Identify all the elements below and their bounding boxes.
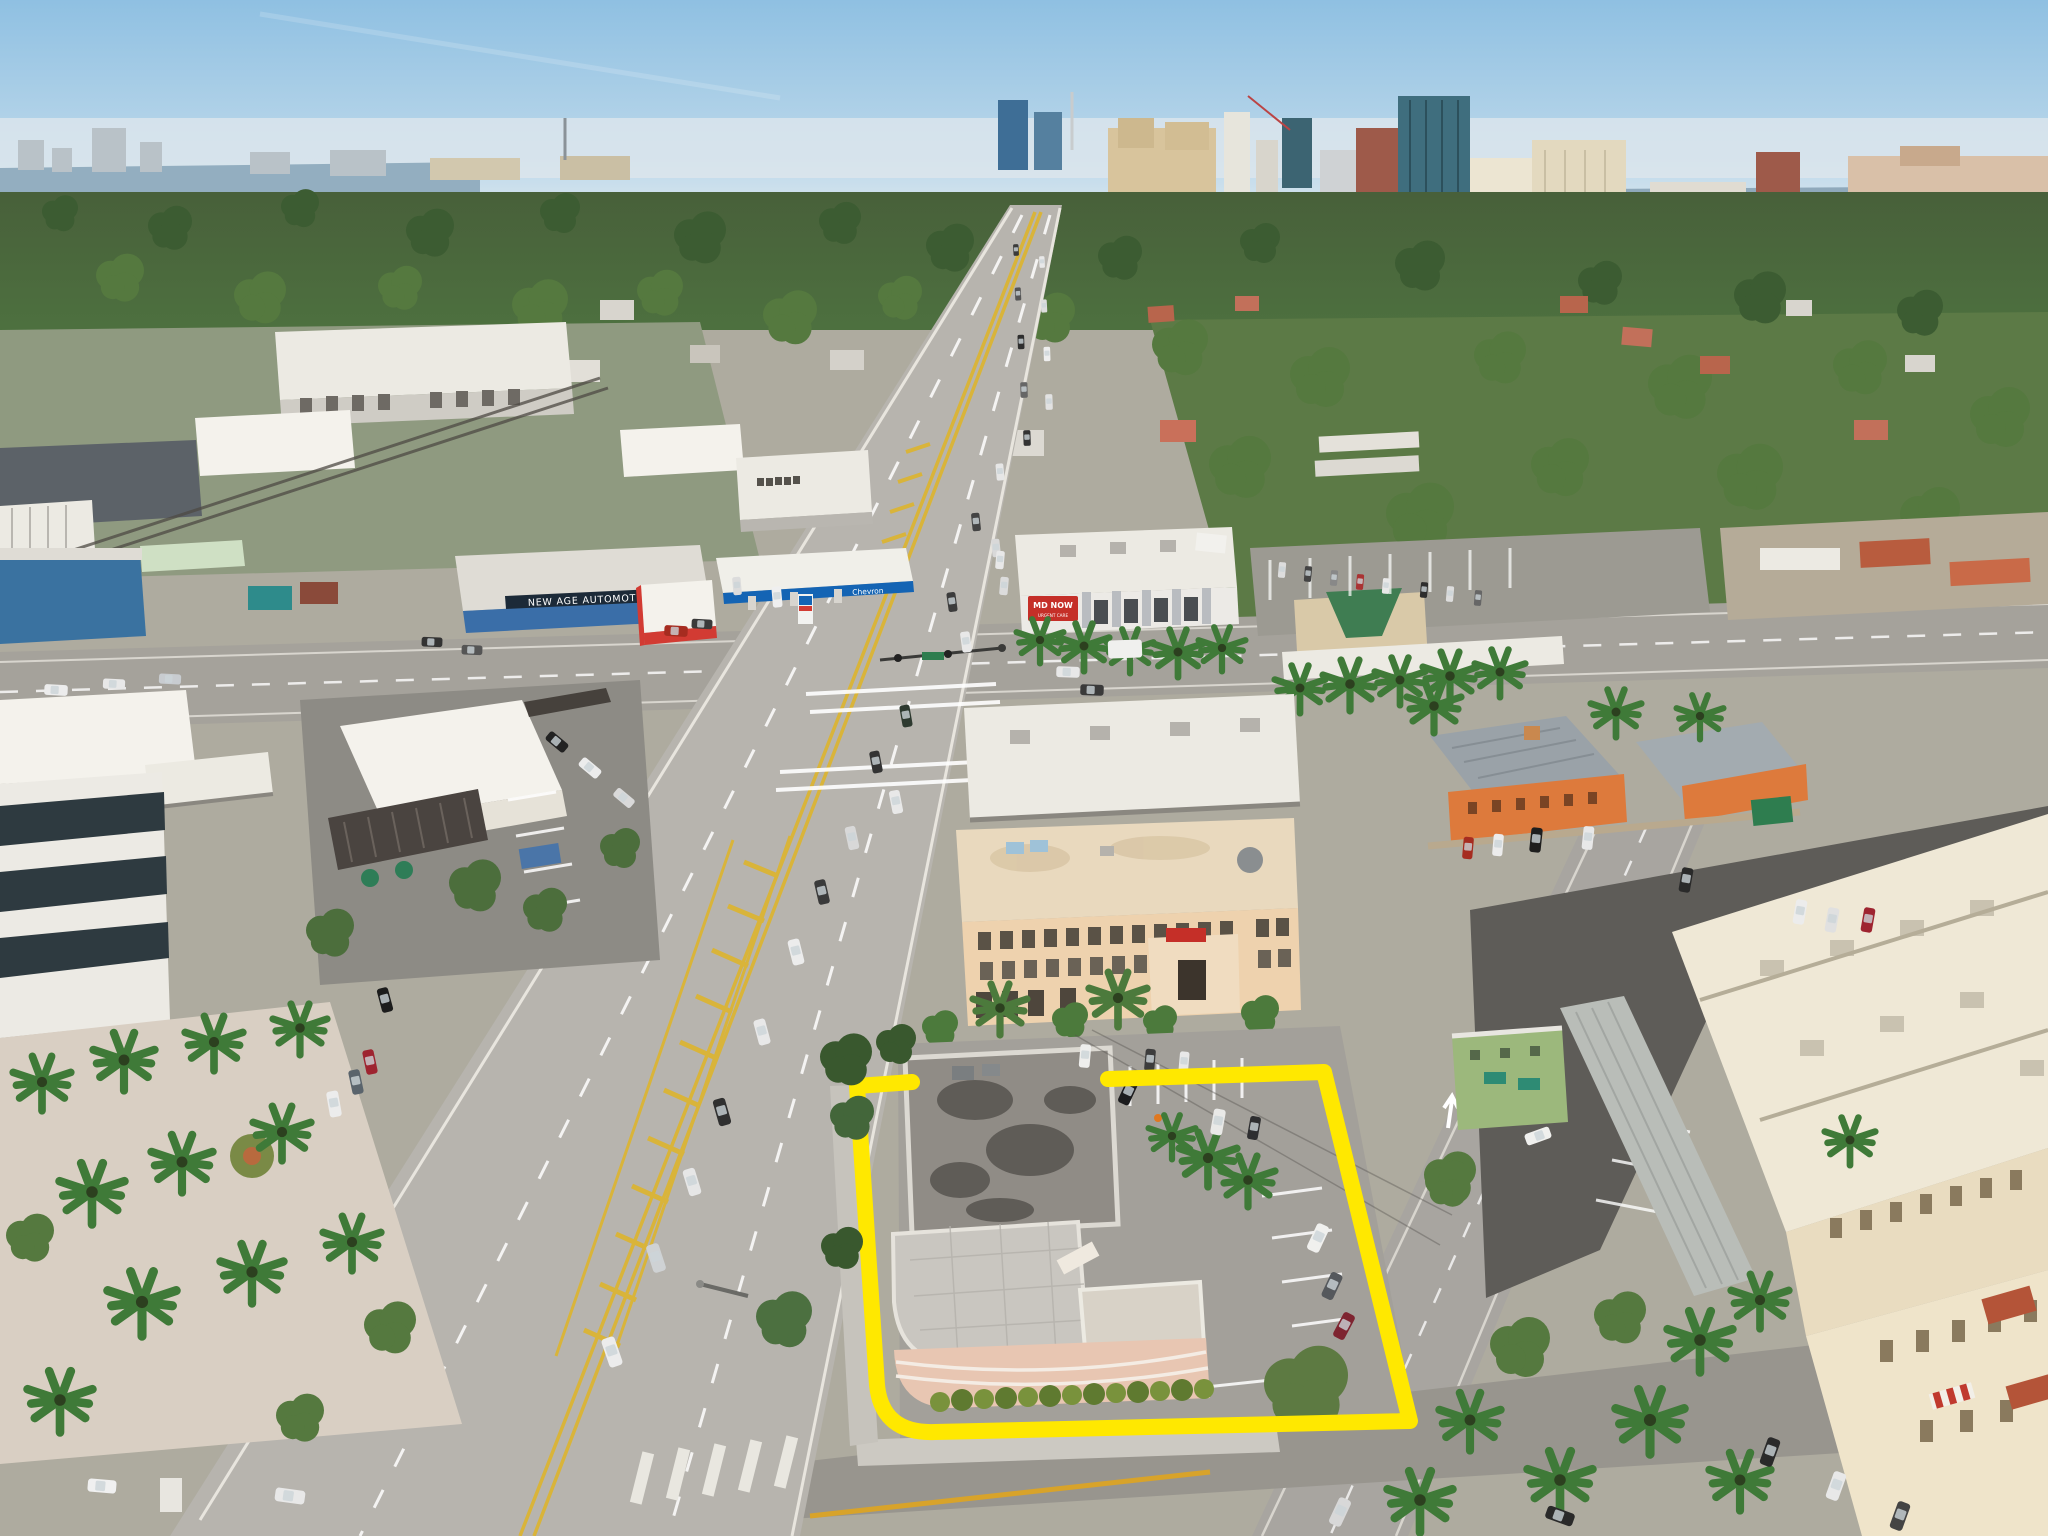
svg-text:URGENT CARE: URGENT CARE xyxy=(1038,613,1069,618)
svg-text:MD NOW: MD NOW xyxy=(1033,601,1073,610)
chevron-canopy-sign: Chevron xyxy=(852,586,884,597)
gray-tile-roof xyxy=(893,1222,1088,1362)
starbucks-building xyxy=(300,680,660,985)
cigar-warehouse-roof xyxy=(736,450,873,532)
strip-mall-far-right xyxy=(1720,512,2048,620)
monument-sign xyxy=(160,1478,182,1512)
aerial-photo: NEW AGE AUTOMOTIVE Chevron MD NOW URGENT… xyxy=(0,0,2048,1536)
teal-awning xyxy=(1484,1072,1506,1084)
cupola xyxy=(1524,726,1540,740)
box-truck-street xyxy=(1108,639,1143,658)
green-apartment-building xyxy=(1452,1028,1568,1130)
office-building-peach xyxy=(922,818,1301,1046)
white-commercial-roof xyxy=(964,694,1300,820)
traffic-cone xyxy=(1154,1114,1162,1122)
entrance-sign xyxy=(1166,928,1206,942)
street-name-sign xyxy=(922,652,944,660)
patio-umbrella xyxy=(361,869,379,887)
box-truck xyxy=(1195,532,1227,553)
green-dumpster xyxy=(1751,796,1793,826)
